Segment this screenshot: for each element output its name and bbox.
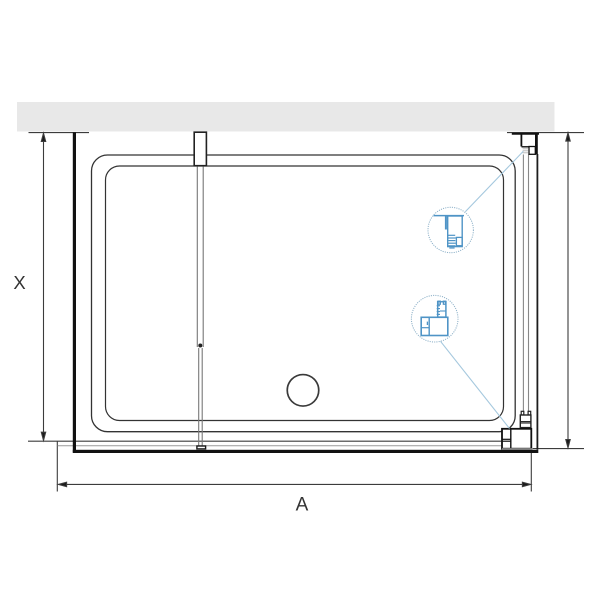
svg-text:X: X [13, 272, 25, 293]
svg-text:A: A [296, 495, 309, 516]
